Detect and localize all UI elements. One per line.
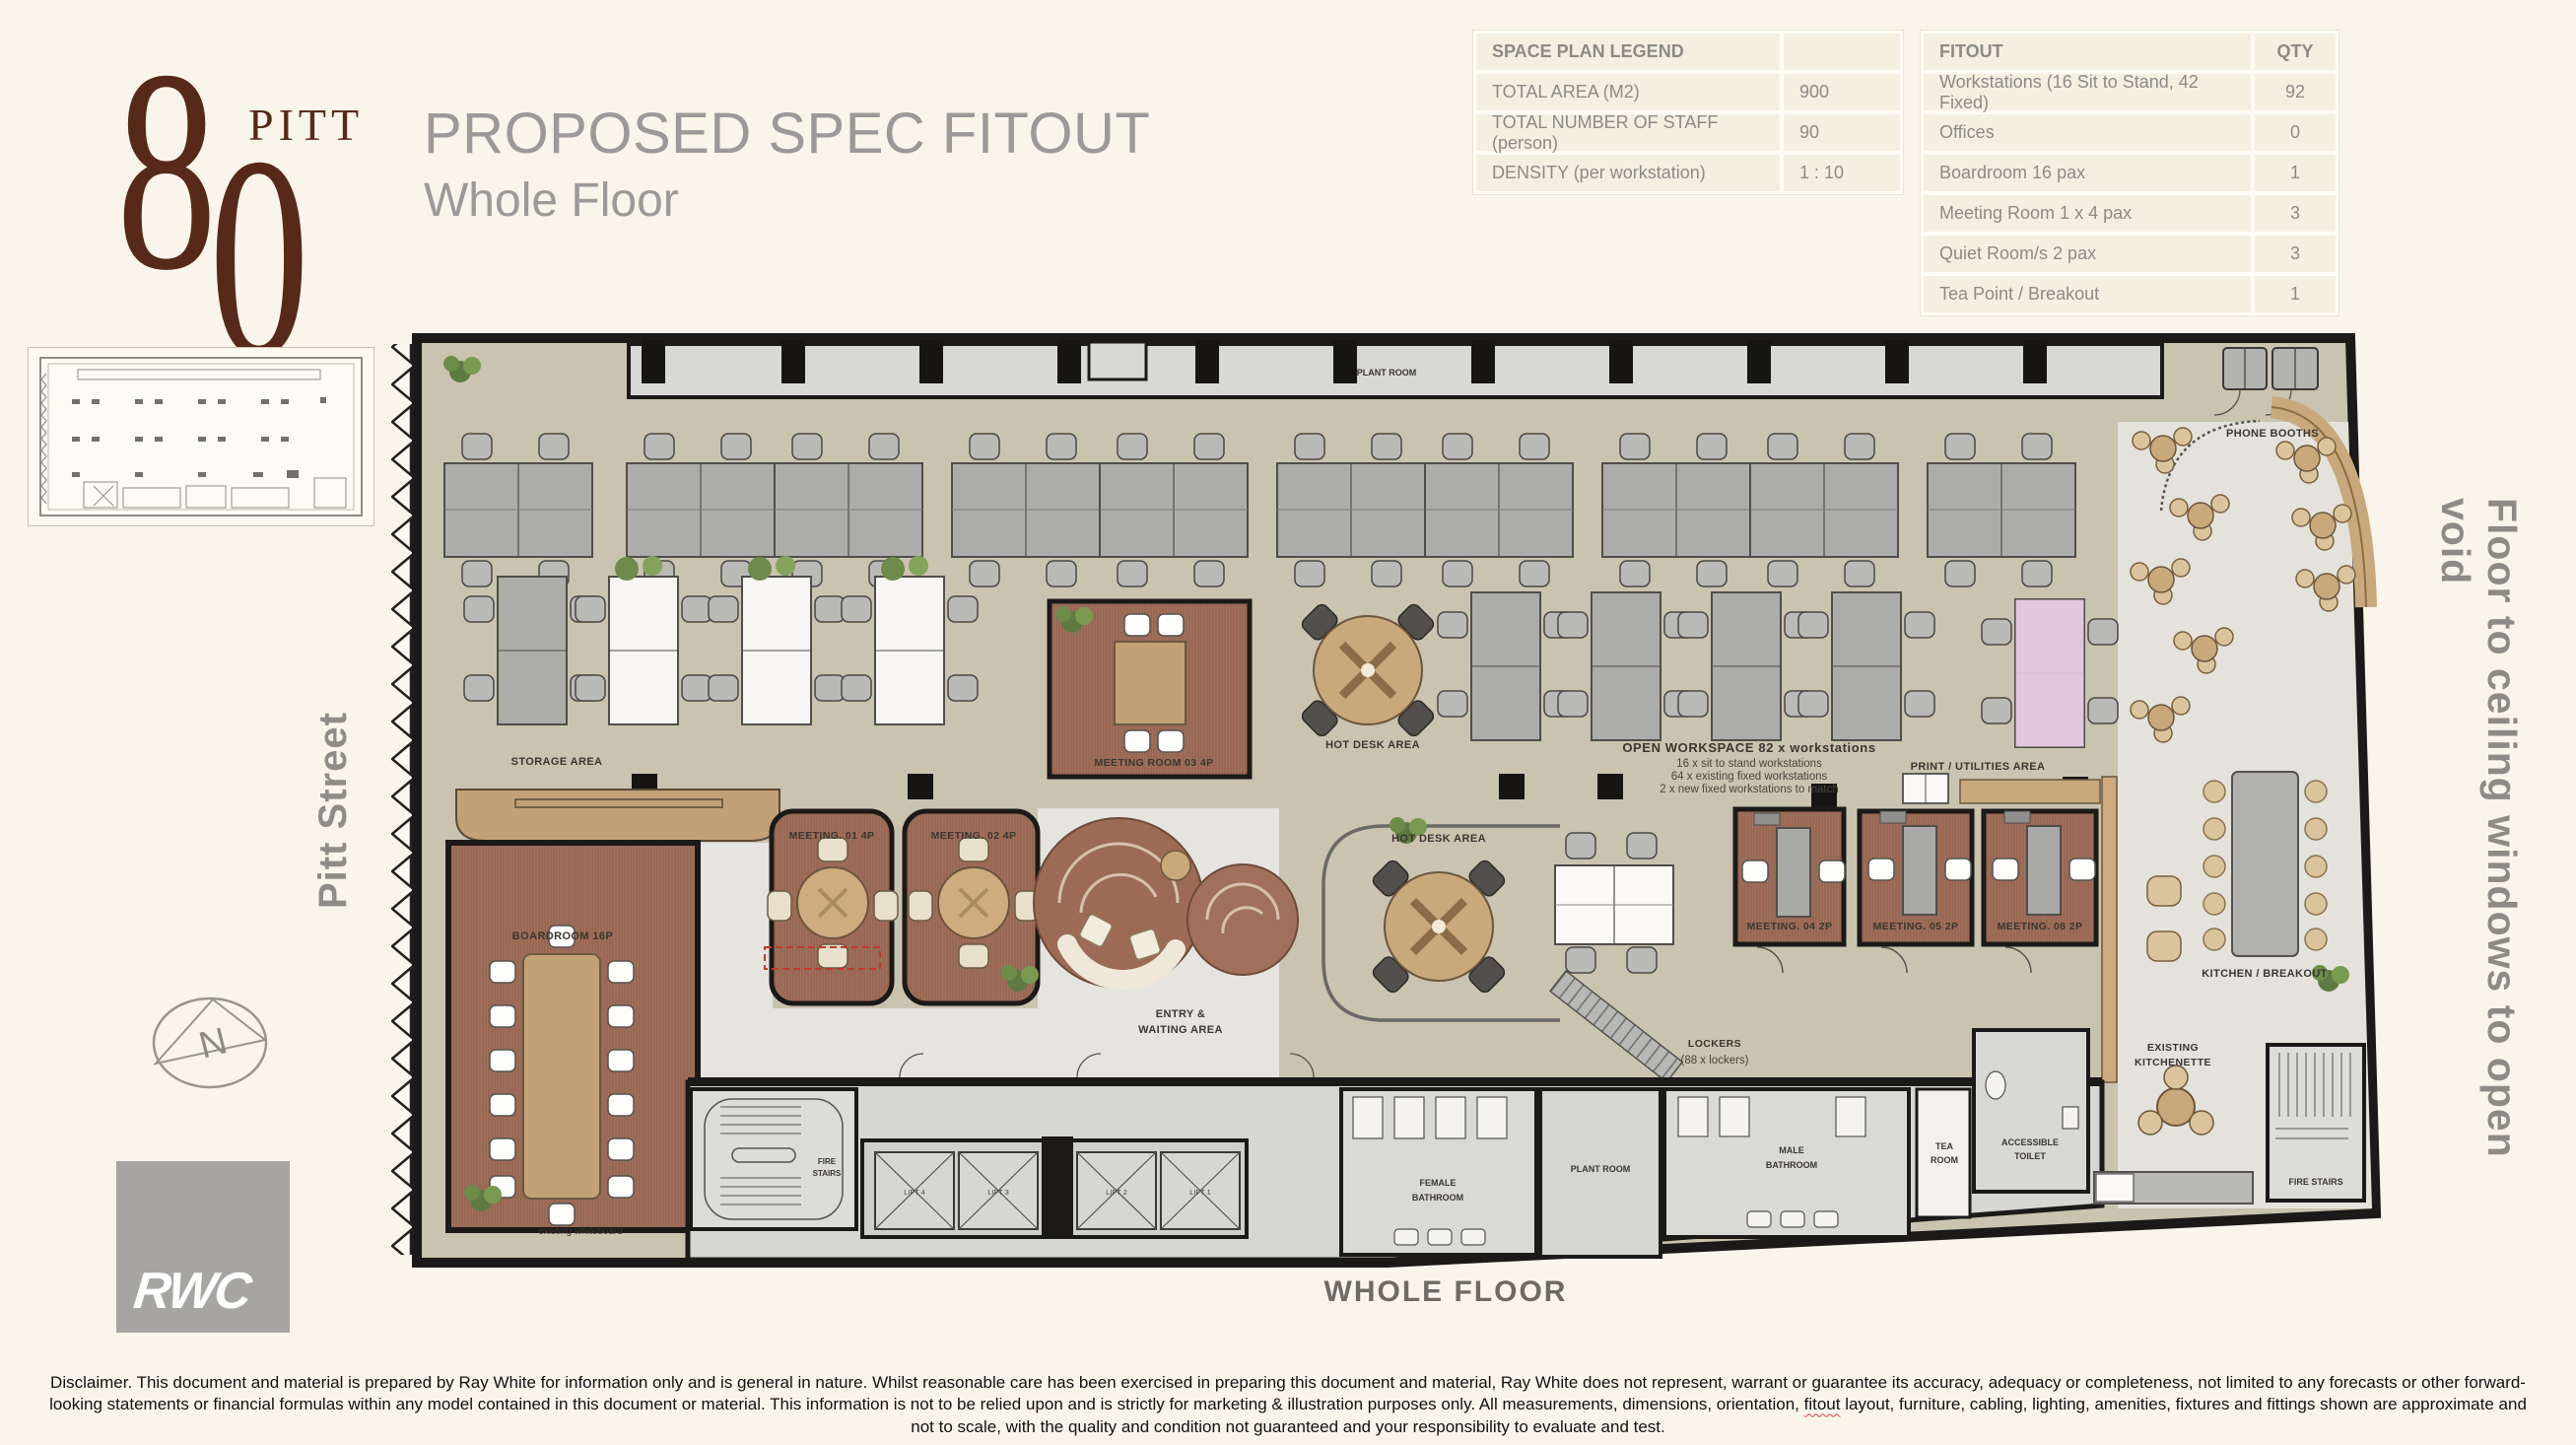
legend-row-value: 90 — [1784, 114, 1900, 151]
label-kitchen-breakout: KITCHEN / BREAKOUT — [2202, 968, 2328, 980]
label-meeting-06: MEETING. 06 2P — [1998, 921, 2083, 932]
logo-pitt-text: PITT — [248, 99, 364, 151]
disclaimer-fitout-word: fitout — [1804, 1395, 1841, 1413]
key-plan-sketch — [29, 348, 373, 525]
label-hot-desk-1: HOT DESK AREA — [1325, 739, 1420, 751]
label-female-2: BATHROOM — [1412, 1193, 1463, 1203]
page-subtitle: Whole Floor — [424, 173, 679, 228]
label-existing-kitchenette-2: KITCHENETTE — [2135, 1057, 2211, 1068]
space-plan-legend-table: SPACE PLAN LEGEND TOTAL AREA (M2) 900 TO… — [1472, 30, 1904, 195]
label-lift-1: LIFT 1 — [1189, 1188, 1211, 1197]
label-plant-room-core: PLANT ROOM — [1571, 1164, 1631, 1174]
fitout-row-qty: 0 — [2255, 114, 2336, 151]
label-print-utilities: PRINT / UTILITIES AREA — [1911, 761, 2046, 773]
legend-row-label: DENSITY (per workstation) — [1476, 155, 1780, 191]
page: 8 0 PITT PROPOSED SPEC FITOUT Whole Floo… — [0, 0, 2576, 1445]
disclaimer: Disclaimer. This document and material i… — [49, 1372, 2527, 1438]
fitout-row-label: Workstations (16 Sit to Stand, 42 Fixed) — [1924, 74, 2251, 110]
label-fire-stairs-left-2: STAIRS — [813, 1169, 842, 1178]
label-plant-room: PLANT ROOM — [1357, 368, 1417, 378]
fitout-row-qty: 1 — [2255, 155, 2336, 191]
label-lift-4: LIFT 4 — [904, 1188, 925, 1197]
legend-row-label: TOTAL AREA (M2) — [1476, 74, 1780, 110]
compass-north-letter: N — [195, 1020, 232, 1067]
boardroom — [448, 843, 698, 1230]
legend-row-label: TOTAL NUMBER OF STAFF (person) — [1476, 114, 1780, 151]
label-tea-2: ROOM — [1931, 1155, 1958, 1165]
label-storage-area: STORAGE AREA — [511, 756, 603, 768]
fitout-row-qty: 3 — [2255, 195, 2336, 232]
fitout-row-label: Meeting Room 1 x 4 pax — [1924, 195, 2251, 232]
floor-plan: PLANT ROOM PHONE BOOTHS STORAGE AREA BOA… — [387, 328, 2407, 1276]
legend-header: SPACE PLAN LEGEND — [1476, 34, 1780, 70]
label-entry-2: WAITING AREA — [1138, 1024, 1223, 1036]
label-male-1: MALE — [1779, 1145, 1804, 1155]
plan-caption: WHOLE FLOOR — [1249, 1275, 1643, 1309]
label-open-workspace-2: 64 x existing fixed workstations — [1671, 771, 1828, 783]
storage-credenza — [456, 790, 780, 841]
label-entry-1: ENTRY & — [1156, 1008, 1205, 1020]
fitout-row-label: Boardroom 16 pax — [1924, 155, 2251, 191]
fitout-header: FITOUT — [1924, 34, 2251, 70]
hot-desk-1 — [1300, 602, 1437, 739]
windows-void-label: Floor to ceiling windows to open void — [2432, 498, 2525, 1168]
page-title: PROPOSED SPEC FITOUT — [424, 101, 1150, 167]
label-lockers-2: (88 x lockers) — [1680, 1055, 1748, 1067]
rwc-logo: RWC — [116, 1161, 290, 1333]
legend-row-value: 900 — [1784, 74, 1900, 110]
meeting-room-03 — [1050, 601, 1250, 777]
label-open-workspace: OPEN WORKSPACE 82 x workstations — [1622, 740, 1875, 755]
label-open-workspace-3: 2 x new fixed workstations to match — [1660, 784, 1839, 795]
fitout-row-qty: 1 — [2255, 276, 2336, 312]
label-female-1: FEMALE — [1420, 1178, 1457, 1188]
female-bathroom — [1341, 1089, 1536, 1255]
key-plan-thumbnail — [28, 347, 374, 526]
label-phone-booths: PHONE BOOTHS — [2226, 428, 2319, 440]
label-hot-desk-2: HOT DESK AREA — [1391, 833, 1486, 845]
label-accessible-2: TOILET — [2014, 1151, 2046, 1161]
fitout-row-label: Quiet Room/s 2 pax — [1924, 236, 2251, 272]
timber-batten-wall — [2102, 777, 2117, 1082]
corridor-floor — [698, 843, 773, 1087]
fitout-row-qty: 3 — [2255, 236, 2336, 272]
legend-row-value: 1 : 10 — [1784, 155, 1900, 191]
label-existing-kitchenette-1: EXISTING — [2147, 1042, 2199, 1054]
label-lift-3: LIFT 3 — [987, 1188, 1009, 1197]
label-fire-stairs-right: FIRE STAIRS — [2288, 1177, 2342, 1187]
pitt-street-label: Pitt Street — [311, 682, 356, 909]
label-meeting-04: MEETING. 04 2P — [1747, 921, 1833, 932]
label-fire-stairs-left-1: FIRE — [818, 1157, 837, 1166]
label-meeting-05: MEETING. 05 2P — [1873, 921, 1959, 932]
label-meeting-02: MEETING. 02 4P — [931, 830, 1017, 842]
rwc-logo-text: RWC — [131, 1262, 253, 1321]
tea-room — [1917, 1089, 1970, 1217]
fitout-qty-header: QTY — [2255, 34, 2336, 70]
label-lockers-1: LOCKERS — [1688, 1038, 1741, 1050]
logo-digit-eight: 8 — [116, 28, 217, 315]
label-boardroom: BOARDROOM 16P — [512, 930, 613, 942]
legend-header-spacer — [1784, 34, 1900, 70]
label-open-workspace-1: 16 x sit to stand workstations — [1676, 758, 1822, 770]
fitout-row-label: Tea Point / Breakout — [1924, 276, 2251, 312]
label-accessible-1: ACCESSIBLE — [2001, 1137, 2059, 1147]
label-tea-1: TEA — [1935, 1141, 1954, 1151]
north-compass: N — [148, 991, 276, 1104]
label-meeting-01: MEETING. 01 4P — [789, 830, 875, 842]
accessible-toilet — [1974, 1030, 2088, 1192]
fitout-table: FITOUT QTY Workstations (16 Sit to Stand… — [1920, 30, 2339, 316]
label-lift-2: LIFT 2 — [1106, 1188, 1127, 1197]
fitout-row-qty: 92 — [2255, 74, 2336, 110]
fitout-row-label: Offices — [1924, 114, 2251, 151]
label-male-2: BATHROOM — [1766, 1160, 1817, 1170]
label-existing-whiteboard: existing whiteboard — [538, 1226, 623, 1237]
label-meeting-03: MEETING ROOM 03 4P — [1095, 757, 1214, 769]
